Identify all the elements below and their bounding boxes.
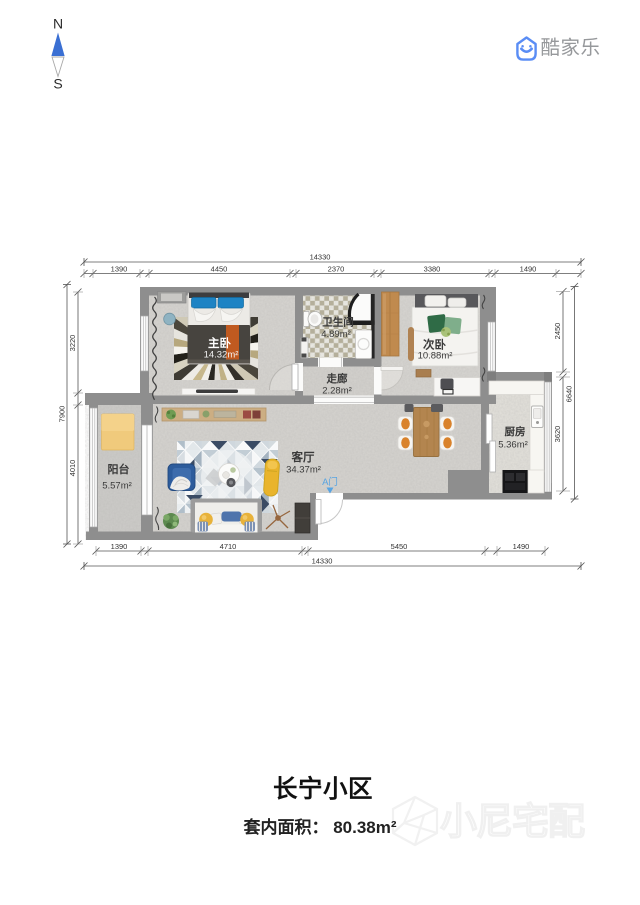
svg-text:3220: 3220 (68, 335, 77, 352)
svg-text:走廊: 走廊 (326, 372, 348, 385)
svg-text:1490: 1490 (513, 542, 530, 551)
svg-text:主卧: 主卧 (208, 336, 231, 350)
svg-text:7900: 7900 (58, 406, 67, 423)
svg-text:1390: 1390 (111, 265, 128, 274)
svg-text:2.28m²: 2.28m² (322, 386, 352, 397)
svg-text:N: N (53, 16, 63, 32)
svg-text:S: S (53, 76, 62, 92)
svg-text:客厅: 客厅 (291, 450, 315, 464)
svg-text:套内面积： 80.38m²: 套内面积： 80.38m² (242, 817, 396, 837)
svg-text:4450: 4450 (211, 265, 228, 274)
svg-text:5.57m²: 5.57m² (102, 481, 132, 492)
svg-text:4.89m²: 4.89m² (321, 329, 351, 340)
svg-text:4710: 4710 (220, 542, 237, 551)
svg-text:14.32m²: 14.32m² (204, 350, 239, 361)
svg-text:5450: 5450 (391, 542, 408, 551)
svg-text:2370: 2370 (328, 265, 345, 274)
svg-text:1390: 1390 (111, 542, 128, 551)
svg-text:厨房: 厨房 (505, 425, 526, 438)
svg-text:长宁小区: 长宁小区 (273, 774, 373, 803)
svg-text:6640: 6640 (565, 386, 574, 403)
svg-text:A门: A门 (322, 476, 338, 488)
svg-text:34.37m²: 34.37m² (286, 465, 321, 476)
svg-text:5.36m²: 5.36m² (498, 440, 528, 451)
svg-text:小尼宅配: 小尼宅配 (440, 800, 585, 842)
svg-text:阳台: 阳台 (108, 462, 130, 476)
svg-text:卫生间: 卫生间 (322, 316, 354, 329)
svg-text:1490: 1490 (520, 265, 537, 274)
svg-text:4010: 4010 (68, 460, 77, 477)
svg-text:14330: 14330 (310, 253, 331, 262)
svg-text:酷家乐: 酷家乐 (541, 37, 601, 59)
svg-text:3620: 3620 (553, 426, 562, 443)
svg-text:3380: 3380 (424, 265, 441, 274)
svg-text:次卧: 次卧 (423, 338, 446, 352)
svg-text:14330: 14330 (312, 557, 333, 566)
svg-text:10.88m²: 10.88m² (418, 351, 453, 362)
svg-text:2450: 2450 (553, 323, 562, 340)
